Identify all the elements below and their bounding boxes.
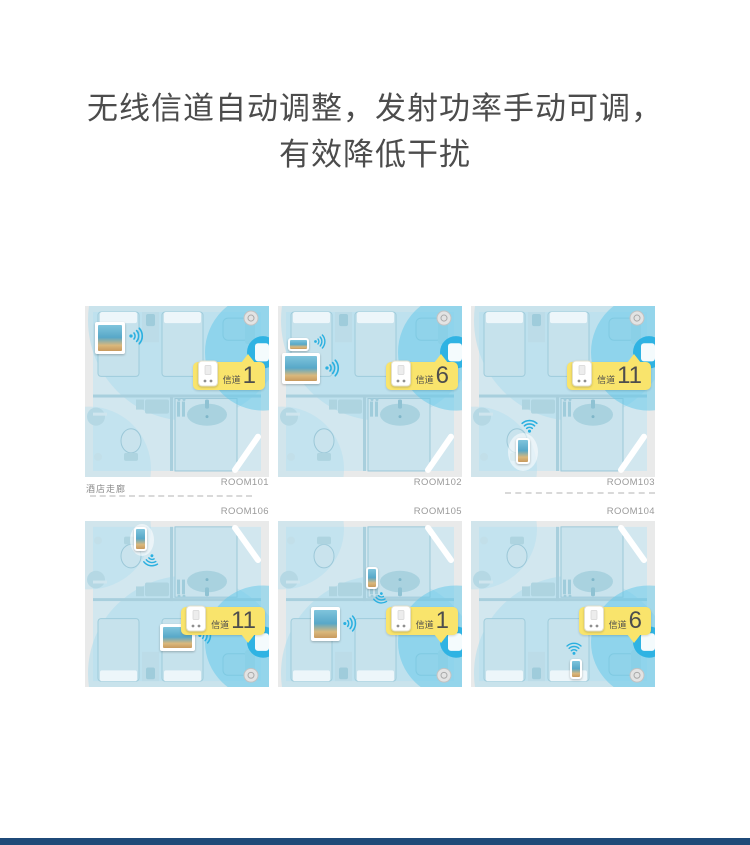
wall-ap-icon <box>572 360 592 387</box>
floorplan-room102 <box>278 306 462 477</box>
channel-label: 信道 <box>211 618 229 631</box>
wifi-signal-icon <box>566 640 582 656</box>
phone-screen <box>290 340 307 349</box>
phone-device <box>288 338 309 351</box>
channel-number: 1 <box>243 365 256 387</box>
corridor-dashed-line-right <box>505 492 655 494</box>
wifi-signal-icon <box>128 327 146 345</box>
wifi-signal-icon <box>521 417 538 434</box>
phone-device <box>366 567 378 589</box>
room-label-104: ROOM104 <box>471 506 655 518</box>
tv-screen <box>314 610 337 638</box>
floorplan-room105 <box>278 521 462 687</box>
corridor-dashed-line-left <box>90 495 252 497</box>
channel-badge: 信道 1 <box>193 362 265 390</box>
channel-badge: 信道 11 <box>181 607 265 635</box>
room-cell-103: 信道 11 <box>471 306 655 477</box>
phone-screen <box>572 661 580 677</box>
floorplan-room104 <box>471 521 655 687</box>
page-title-line2: 有效降低干扰 <box>0 132 750 178</box>
channel-label: 信道 <box>609 618 627 631</box>
phone-device <box>516 438 530 464</box>
page-title: 无线信道自动调整，发射功率手动可调， 有效降低干扰 <box>0 86 750 178</box>
wifi-signal-icon <box>342 615 359 632</box>
corridor-label: 酒店走廊 <box>86 482 126 495</box>
room-cell-105: 信道 1 <box>278 521 462 687</box>
tv-device <box>282 353 320 384</box>
floorplan-room106 <box>85 521 269 687</box>
wall-ap-icon <box>584 605 604 632</box>
channel-badge: 信道 11 <box>567 362 651 390</box>
channel-number: 6 <box>436 365 449 387</box>
room-label-105: ROOM105 <box>278 506 462 518</box>
room-cell-106: 信道 11 <box>85 521 269 687</box>
channel-label: 信道 <box>223 373 241 386</box>
footer-bar <box>0 838 750 845</box>
floorplan-room103 <box>471 306 655 477</box>
wifi-signal-icon <box>313 334 328 349</box>
tv-screen <box>98 325 122 351</box>
channel-number: 6 <box>629 610 642 632</box>
channel-badge: 信道 6 <box>579 607 651 635</box>
channel-number: 1 <box>436 610 449 632</box>
room-label-103: ROOM103 <box>471 477 655 489</box>
phone-screen <box>136 529 145 549</box>
tv-device <box>95 322 125 354</box>
page: 无线信道自动调整，发射功率手动可调， 有效降低干扰 信道 1 信道 6 <box>0 0 750 845</box>
tv-screen <box>285 356 317 381</box>
room-cell-104: 信道 6 <box>471 521 655 687</box>
phone-screen <box>368 569 376 587</box>
tv-device <box>311 607 340 641</box>
channel-badge: 信道 6 <box>386 362 458 390</box>
channel-label: 信道 <box>416 618 434 631</box>
page-title-line1: 无线信道自动调整，发射功率手动可调， <box>0 86 750 132</box>
room-cell-102: 信道 6 <box>278 306 462 477</box>
channel-number: 11 <box>231 610 256 632</box>
channel-label: 信道 <box>597 373 615 386</box>
room-label-106: ROOM106 <box>85 506 269 518</box>
room-cell-101: 信道 1 <box>85 306 269 477</box>
channel-label: 信道 <box>416 373 434 386</box>
wifi-signal-icon <box>372 590 389 607</box>
wall-ap-icon <box>391 360 411 387</box>
phone-screen <box>518 440 528 462</box>
wifi-signal-icon <box>324 359 342 377</box>
wifi-signal-icon <box>142 552 161 571</box>
channel-number: 11 <box>617 365 642 387</box>
wall-ap-icon <box>186 605 206 632</box>
wall-ap-icon <box>198 360 218 387</box>
channel-badge: 信道 1 <box>386 607 458 635</box>
wall-ap-icon <box>391 605 411 632</box>
room-label-102: ROOM102 <box>278 477 462 489</box>
phone-device <box>570 659 582 679</box>
phone-device <box>134 527 147 551</box>
